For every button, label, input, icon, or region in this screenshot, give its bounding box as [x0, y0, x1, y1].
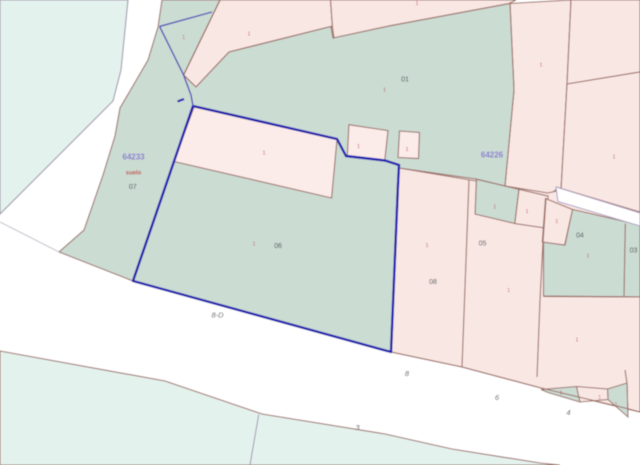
svg-text:1: 1 [560, 391, 563, 397]
svg-text:03: 03 [630, 248, 638, 255]
svg-text:1: 1 [493, 205, 496, 211]
svg-text:1: 1 [540, 63, 543, 69]
svg-text:1: 1 [615, 402, 618, 408]
svg-text:suelo: suelo [126, 171, 142, 177]
svg-text:1: 1 [182, 35, 185, 41]
svg-text:8-D: 8-D [211, 311, 224, 320]
svg-text:64226: 64226 [481, 151, 504, 160]
svg-text:1: 1 [587, 254, 590, 260]
svg-text:1: 1 [248, 32, 251, 38]
svg-text:1: 1 [406, 147, 409, 153]
svg-text:1: 1 [253, 242, 256, 248]
svg-text:04: 04 [576, 233, 584, 240]
svg-text:07: 07 [129, 184, 137, 191]
svg-text:1: 1 [507, 288, 510, 294]
svg-text:64233: 64233 [122, 153, 145, 162]
svg-text:4: 4 [566, 408, 570, 417]
svg-text:1: 1 [576, 337, 579, 343]
svg-text:1: 1 [263, 151, 266, 157]
svg-text:05: 05 [479, 241, 487, 248]
svg-text:1: 1 [416, 1, 419, 7]
svg-text:1: 1 [598, 395, 601, 401]
svg-text:1: 1 [426, 243, 429, 249]
svg-text:08: 08 [429, 279, 437, 286]
svg-text:1: 1 [383, 88, 386, 94]
svg-text:1: 1 [526, 209, 529, 215]
svg-text:01: 01 [401, 77, 409, 84]
svg-text:06: 06 [274, 243, 282, 250]
svg-text:1: 1 [555, 219, 558, 225]
svg-text:1: 1 [613, 155, 616, 161]
svg-text:1: 1 [357, 144, 360, 150]
